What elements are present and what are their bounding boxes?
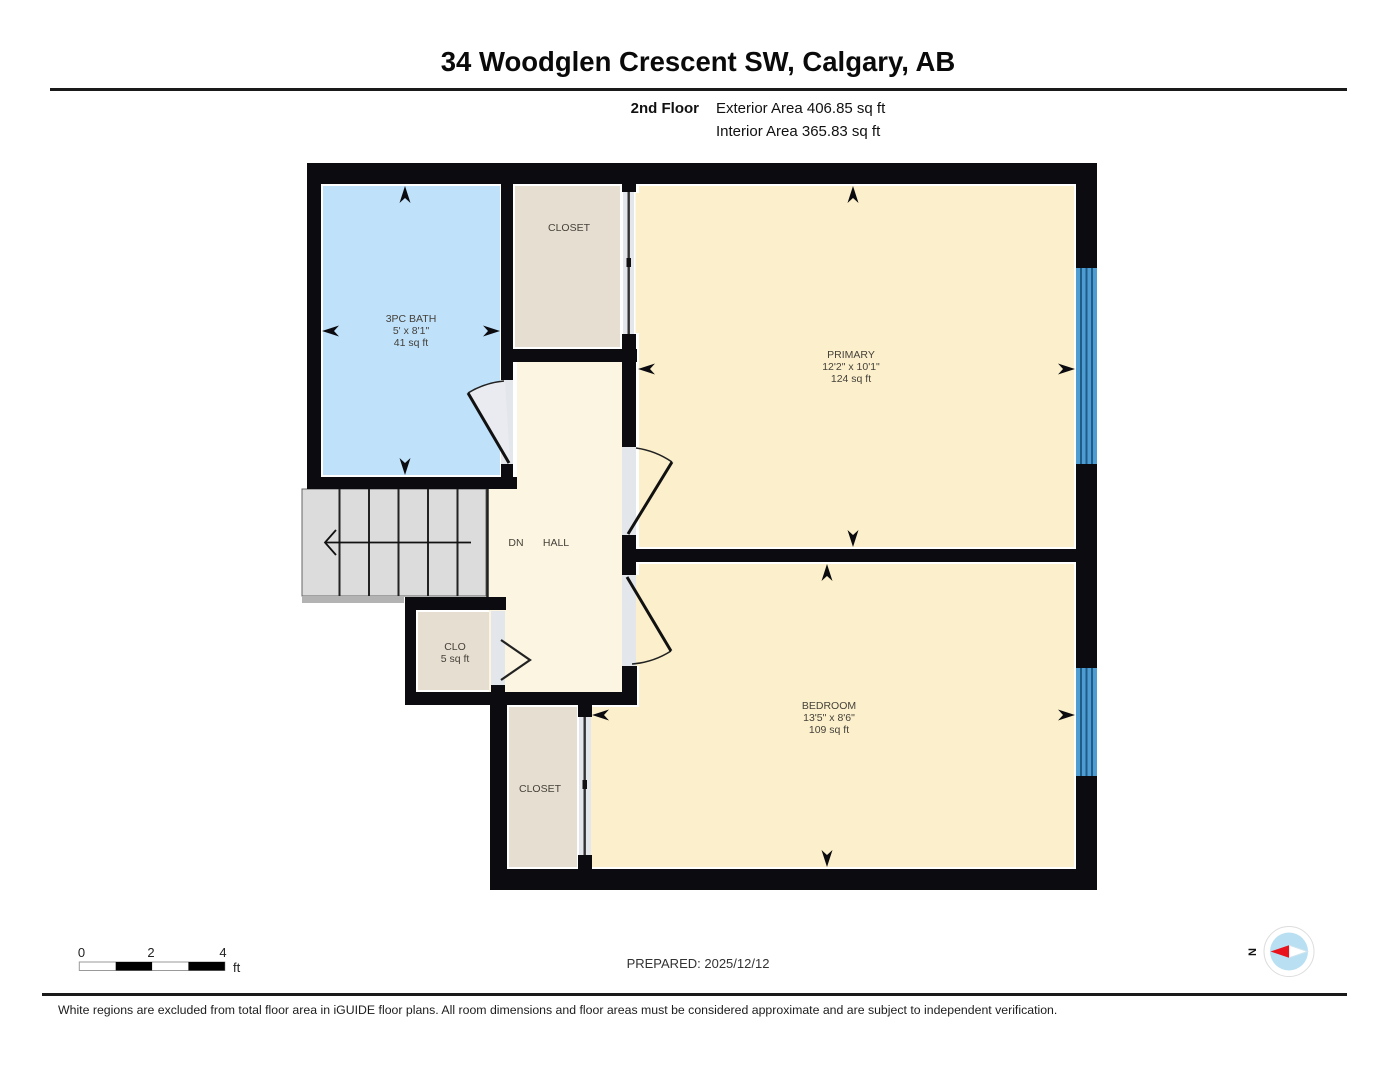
svg-text:DN: DN [508,537,523,549]
svg-text:BEDROOM: BEDROOM [802,700,856,712]
svg-text:HALL: HALL [543,537,569,549]
svg-text:N: N [1247,948,1259,956]
svg-text:Interior Area 365.83 sq ft: Interior Area 365.83 sq ft [716,123,881,140]
svg-text:2: 2 [147,945,154,960]
svg-text:34 Woodglen Crescent SW, Calga: 34 Woodglen Crescent SW, Calgary, AB [441,46,955,77]
svg-text:3PC BATH: 3PC BATH [386,313,437,325]
svg-text:CLO: CLO [444,641,466,653]
svg-text:12'2" x 10'1": 12'2" x 10'1" [822,361,880,373]
svg-text:PREPARED: 2025/12/12: PREPARED: 2025/12/12 [627,956,770,971]
svg-text:PRIMARY: PRIMARY [827,349,875,361]
svg-text:Exterior Area 406.85 sq ft: Exterior Area 406.85 sq ft [716,100,886,117]
svg-text:13'5" x 8'6": 13'5" x 8'6" [803,712,855,724]
svg-text:5' x 8'1": 5' x 8'1" [393,325,430,337]
svg-text:CLOSET: CLOSET [548,222,591,234]
svg-text:ft: ft [233,960,241,975]
svg-text:White regions are excluded fro: White regions are excluded from total fl… [58,1003,1057,1017]
svg-text:109 sq ft: 109 sq ft [809,724,849,736]
svg-text:2nd Floor: 2nd Floor [631,100,699,117]
svg-text:5 sq ft: 5 sq ft [441,653,470,665]
svg-text:41 sq ft: 41 sq ft [394,337,429,349]
svg-text:4: 4 [219,945,226,960]
svg-text:0: 0 [78,945,85,960]
svg-text:CLOSET: CLOSET [519,783,562,795]
svg-text:124 sq ft: 124 sq ft [831,373,871,385]
